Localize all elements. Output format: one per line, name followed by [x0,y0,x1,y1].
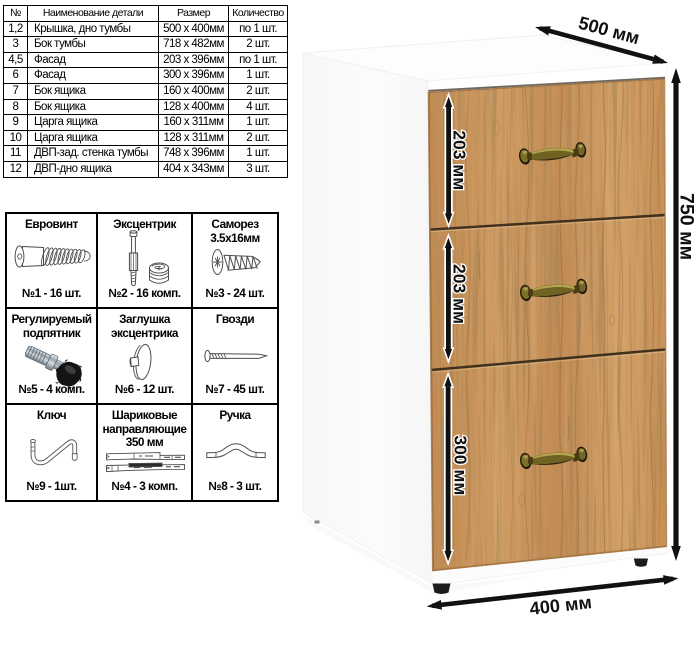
svg-text:300 мм: 300 мм [451,435,471,495]
svg-text:750 мм: 750 мм [676,193,698,260]
svg-text:203 мм: 203 мм [450,264,470,324]
svg-text:203 мм: 203 мм [450,130,470,190]
